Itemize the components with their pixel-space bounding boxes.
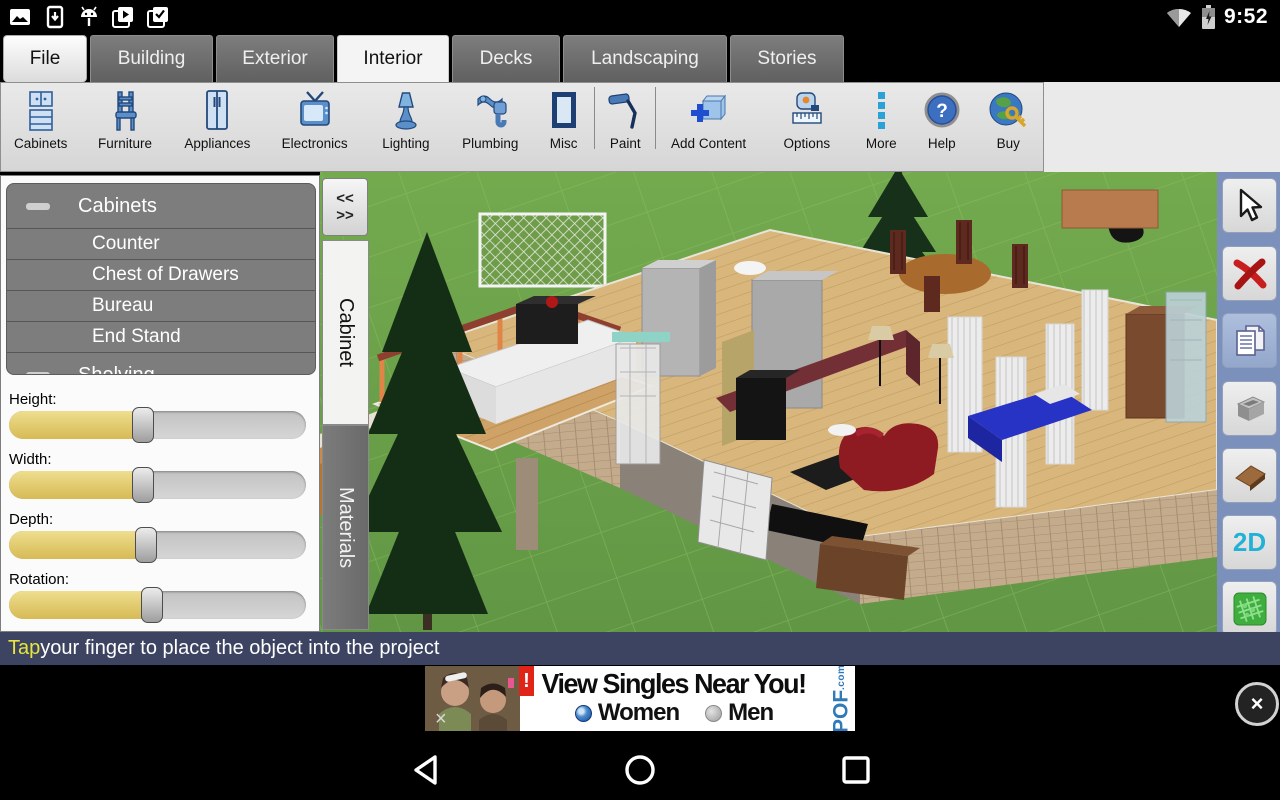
toolbar-lighting[interactable]: Lighting (364, 83, 447, 174)
delete-x-icon (1232, 256, 1268, 292)
toolbar-add-content[interactable]: Add Content (656, 83, 761, 174)
add-content-icon (687, 88, 731, 134)
delete-tool-button[interactable] (1222, 246, 1277, 301)
rotation-slider[interactable] (9, 591, 306, 619)
toolbar-more[interactable]: More (852, 83, 910, 174)
width-slider[interactable] (9, 471, 306, 499)
furniture-icon (105, 88, 145, 134)
tab-building[interactable]: Building (90, 35, 213, 82)
height-label: Height: (9, 391, 57, 408)
rotation-label: Rotation: (9, 571, 69, 588)
plumbing-icon (468, 88, 512, 134)
copy-icon (1232, 322, 1268, 360)
slider-thumb[interactable] (135, 527, 157, 563)
block-tool-button[interactable] (1222, 381, 1277, 436)
list-item-counter[interactable]: Counter (7, 229, 315, 260)
list-item-bureau[interactable]: Bureau (7, 291, 315, 322)
list-group-shelving[interactable]: Shelving (7, 353, 315, 375)
ad-headline: View Singles Near You! (542, 670, 806, 698)
android-notification-icon (78, 5, 100, 29)
radio-unselected-icon (705, 705, 722, 722)
height-slider[interactable] (9, 411, 306, 439)
hint-text: your finger to place the object into the… (40, 637, 439, 660)
side-tab-cabinet[interactable]: Cabinet (322, 240, 369, 425)
select-tool-button[interactable] (1222, 178, 1277, 233)
tab-exterior[interactable]: Exterior (216, 35, 334, 82)
toolbar-help[interactable]: ? Help (910, 83, 974, 174)
toolbar-buy[interactable]: Buy (974, 83, 1043, 174)
tab-stories[interactable]: Stories (730, 35, 844, 82)
lighting-icon (386, 88, 426, 134)
ad-mini-close[interactable]: × (435, 709, 447, 729)
tasks-notification-icon (146, 5, 170, 29)
android-status-bar: 9:52 (0, 0, 1280, 35)
toolbar-plumbing[interactable]: Plumbing (448, 83, 533, 174)
toolbar-paint[interactable]: Paint (595, 83, 655, 174)
toolbar-options[interactable]: Options (761, 83, 852, 174)
ad-alert-badge: ! (519, 666, 534, 696)
toolbar-filler (1044, 82, 1280, 172)
edit-tool-strip: 2D (1217, 172, 1280, 632)
appliances-icon (197, 88, 237, 134)
download-notification-icon (43, 5, 67, 29)
ad-content[interactable]: View Singles Near You! Women Men (520, 666, 828, 731)
ad-banner[interactable]: × ! View Singles Near You! Women Men POF… (425, 666, 855, 731)
nav-recents-button[interactable] (840, 754, 872, 786)
object-browser-panel: Cabinets Counter Chest of Drawers Bureau… (0, 175, 320, 632)
block-icon (1231, 392, 1269, 426)
cursor-icon (1233, 188, 1267, 224)
tab-landscaping[interactable]: Landscaping (563, 35, 727, 82)
buy-globe-key-icon (985, 88, 1031, 134)
toolbar-furniture[interactable]: Furniture (80, 83, 169, 174)
gallery-notification-icon (8, 5, 32, 29)
clock: 9:52 (1224, 5, 1268, 29)
ad-option-men[interactable]: Men (705, 699, 773, 727)
cabinets-icon (21, 88, 61, 134)
3d-design-viewport[interactable] (320, 172, 1217, 633)
toolbar-electronics[interactable]: Electronics (265, 83, 364, 174)
svg-text:?: ? (936, 101, 948, 122)
android-nav-bar (0, 740, 1280, 800)
paint-roller-icon (605, 88, 645, 134)
scene-lattice-fence (480, 214, 605, 286)
category-tab-bar: File Building Exterior Interior Decks La… (0, 35, 1280, 82)
radio-selected-icon (575, 705, 592, 722)
hint-bar: Tap your finger to place the object into… (0, 632, 1280, 665)
depth-label: Depth: (9, 511, 53, 528)
list-item-end-stand[interactable]: End Stand (7, 322, 315, 353)
category-list: Cabinets Counter Chest of Drawers Bureau… (6, 183, 316, 375)
tab-file[interactable]: File (3, 35, 87, 82)
ad-brand: POF.com (828, 666, 855, 731)
width-label: Width: (9, 451, 52, 468)
options-icon (786, 88, 828, 134)
electronics-icon (293, 88, 337, 134)
terrain-tool-button[interactable] (1222, 581, 1277, 636)
2d-view-button[interactable]: 2D (1222, 515, 1277, 570)
toolbar-appliances[interactable]: Appliances (170, 83, 265, 174)
help-icon: ? (920, 88, 964, 134)
terrain-icon (1231, 590, 1269, 628)
depth-slider[interactable] (9, 531, 306, 559)
collapse-dash-icon (26, 372, 50, 376)
battery-charging-icon (1201, 4, 1216, 30)
roof-tool-button[interactable] (1222, 448, 1277, 503)
side-tab-materials[interactable]: Materials (322, 425, 369, 630)
copy-tool-button[interactable] (1222, 313, 1277, 368)
nav-home-button[interactable] (622, 752, 658, 788)
ad-close-button[interactable]: × (1235, 682, 1279, 726)
list-group-cabinets[interactable]: Cabinets (7, 184, 315, 229)
slider-thumb[interactable] (132, 467, 154, 503)
list-item-chest-of-drawers[interactable]: Chest of Drawers (7, 260, 315, 291)
2d-label: 2D (1233, 527, 1266, 558)
toolbar-misc[interactable]: Misc (533, 83, 595, 174)
tab-decks[interactable]: Decks (452, 35, 560, 82)
tab-interior[interactable]: Interior (337, 35, 449, 82)
misc-icon (545, 88, 583, 134)
nav-back-button[interactable] (410, 753, 440, 787)
app-window: 9:52 File Building Exterior Interior Dec… (0, 0, 1280, 800)
play-store-notification-icon (111, 5, 135, 29)
ad-photo: × ! (425, 666, 520, 731)
toolbar: Cabinets Furniture Appliances Electronic… (0, 82, 1044, 172)
toolbar-cabinets[interactable]: Cabinets (1, 83, 80, 174)
hint-highlight: Tap (8, 637, 40, 660)
more-dots-icon (871, 88, 891, 134)
roof-icon (1231, 460, 1269, 492)
collapse-dash-icon (26, 203, 50, 210)
slider-thumb[interactable] (132, 407, 154, 443)
panel-collapse-button[interactable]: << >> (322, 178, 368, 236)
ad-option-women[interactable]: Women (575, 699, 679, 727)
wifi-icon (1165, 5, 1193, 29)
slider-thumb[interactable] (141, 587, 163, 623)
